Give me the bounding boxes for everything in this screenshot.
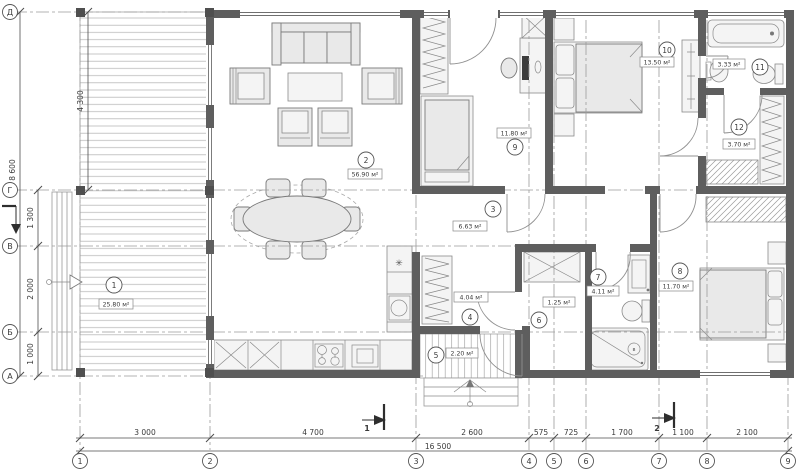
svg-text:8: 8 bbox=[678, 267, 683, 276]
dimensions-bottom: 3 000 4 700 2 600 575 725 1 700 1 100 2 … bbox=[73, 428, 796, 469]
room-label-10: 1013.50 м² bbox=[640, 42, 675, 67]
room-label-8: 811.70 м² bbox=[659, 263, 693, 291]
window-top-9a bbox=[424, 10, 448, 18]
svg-text:6: 6 bbox=[583, 457, 588, 466]
svg-text:3.70 м²: 3.70 м² bbox=[728, 142, 751, 149]
svg-text:6.63 м²: 6.63 м² bbox=[459, 224, 482, 231]
dim-8-9: 2 100 bbox=[736, 428, 758, 437]
dim-3-4: 2 600 bbox=[461, 428, 483, 437]
dining-set bbox=[231, 179, 363, 259]
terrace-deck bbox=[47, 12, 211, 370]
living-room-sofa-set bbox=[230, 23, 402, 146]
window-left-5 bbox=[206, 340, 214, 364]
svg-text:1: 1 bbox=[77, 457, 82, 466]
door-room9-exterior bbox=[450, 10, 498, 64]
window-top-10 bbox=[556, 10, 694, 18]
svg-text:6: 6 bbox=[537, 316, 542, 325]
door-room10-suite bbox=[660, 118, 698, 156]
svg-text:4: 4 bbox=[526, 457, 531, 466]
coffee-table bbox=[288, 73, 342, 101]
axis-bubbles-bottom: 1 2 3 4 5 6 7 8 9 bbox=[73, 454, 796, 469]
room-label-9: 11.80 м²9 bbox=[497, 128, 531, 155]
dim-7-8: 1 100 bbox=[672, 428, 694, 437]
window-top-11 bbox=[708, 10, 784, 18]
svg-text:2: 2 bbox=[654, 424, 660, 433]
room-label-4: 44.04 м² bbox=[454, 292, 488, 325]
svg-text:1: 1 bbox=[112, 281, 117, 290]
svg-text:4.04 м²: 4.04 м² bbox=[460, 295, 483, 302]
svg-text:11.80 м²: 11.80 м² bbox=[501, 131, 528, 138]
svg-text:3.33 м²: 3.33 м² bbox=[718, 62, 741, 69]
room-label-2: 256.90 м² bbox=[348, 152, 382, 179]
dim-4-5: 575 bbox=[534, 428, 549, 437]
window-bottom-8 bbox=[700, 370, 770, 378]
bedroom-8-furniture bbox=[700, 197, 786, 362]
vanity-sink bbox=[628, 255, 650, 293]
dim-d-g: 4 300 bbox=[76, 90, 85, 112]
svg-text:2: 2 bbox=[364, 156, 369, 165]
boiler-icon: ✳ bbox=[395, 259, 403, 269]
svg-text:13.50 м²: 13.50 м² bbox=[644, 60, 671, 67]
svg-text:7: 7 bbox=[596, 273, 601, 282]
svg-text:9: 9 bbox=[513, 143, 518, 152]
wardrobe bbox=[706, 197, 786, 222]
svg-text:Г: Г bbox=[8, 186, 13, 195]
svg-text:4: 4 bbox=[468, 313, 473, 322]
desk bbox=[520, 38, 548, 93]
desk-chair bbox=[501, 58, 517, 78]
shower-tray: в bbox=[588, 328, 648, 370]
nightstand bbox=[554, 18, 574, 40]
svg-text:В: В bbox=[7, 242, 13, 251]
window-left-1 bbox=[206, 45, 214, 105]
door-hall-room9 bbox=[507, 194, 545, 232]
svg-text:3: 3 bbox=[413, 457, 418, 466]
svg-text:7: 7 bbox=[656, 457, 661, 466]
toilet bbox=[622, 300, 650, 322]
drain-label: в bbox=[633, 347, 636, 353]
svg-text:25.80 м²: 25.80 м² bbox=[103, 302, 130, 309]
svg-text:А: А bbox=[7, 372, 13, 381]
svg-text:11: 11 bbox=[755, 63, 765, 72]
bathtub bbox=[708, 20, 784, 47]
svg-text:2.20 м²: 2.20 м² bbox=[451, 351, 474, 358]
svg-text:5: 5 bbox=[551, 457, 556, 466]
room-label-3: 36.63 м² bbox=[453, 201, 501, 231]
svg-text:2: 2 bbox=[207, 457, 212, 466]
svg-text:10: 10 bbox=[662, 46, 672, 55]
hall-cabinet-x bbox=[524, 252, 580, 282]
dim-2-3: 4 700 bbox=[302, 428, 324, 437]
dim-total-left: 8 600 bbox=[8, 159, 17, 181]
porch-steps bbox=[424, 378, 518, 407]
window-top-9b bbox=[500, 10, 543, 18]
svg-text:11.70 м²: 11.70 м² bbox=[663, 284, 690, 291]
kitchen: ✳ bbox=[214, 246, 412, 370]
window-top-living bbox=[240, 10, 400, 18]
svg-text:3: 3 bbox=[491, 205, 496, 214]
bedroom-10-furniture bbox=[554, 18, 700, 136]
dim-g-v: 1 300 bbox=[26, 207, 35, 229]
window-left-3 bbox=[206, 198, 214, 240]
dim-5-6: 725 bbox=[564, 428, 579, 437]
room-label-12: 123.70 м² bbox=[723, 119, 755, 149]
bed-single bbox=[421, 96, 473, 186]
section-marker-left bbox=[2, 206, 21, 234]
terrace-side-steps bbox=[52, 192, 72, 370]
svg-text:56.90 м²: 56.90 м² bbox=[352, 172, 379, 179]
dim-6-7: 1 700 bbox=[611, 428, 633, 437]
svg-text:9: 9 bbox=[785, 457, 790, 466]
dim-b-a: 1 000 bbox=[26, 343, 35, 365]
window-left-2 bbox=[206, 128, 214, 180]
section-marker-1: 1 bbox=[362, 404, 386, 433]
svg-text:1: 1 bbox=[364, 424, 370, 433]
dim-total-bottom: 16 500 bbox=[425, 442, 451, 451]
window-left-4 bbox=[206, 254, 214, 316]
svg-text:12: 12 bbox=[734, 123, 744, 132]
floor-plan-canvas: ✳ bbox=[0, 0, 800, 470]
room-label-7: 74.11 м² bbox=[587, 269, 619, 296]
svg-text:5: 5 bbox=[434, 351, 439, 360]
dining-table bbox=[243, 196, 351, 242]
nightstand bbox=[554, 114, 574, 136]
svg-text:Б: Б bbox=[7, 328, 13, 337]
shelf-unit bbox=[706, 160, 758, 184]
dim-1-2: 3 000 bbox=[134, 428, 156, 437]
svg-text:4.11 м²: 4.11 м² bbox=[592, 289, 615, 296]
dim-v-b: 2 000 bbox=[26, 278, 35, 300]
svg-text:1.25 м²: 1.25 м² bbox=[548, 300, 571, 307]
entry-porch bbox=[420, 334, 522, 407]
bed-double bbox=[554, 42, 642, 113]
room-label-6: 61.25 м² bbox=[531, 297, 575, 328]
nightstand bbox=[768, 242, 786, 264]
bed-double bbox=[700, 268, 784, 340]
svg-text:8: 8 bbox=[704, 457, 709, 466]
axis-bubbles-left: Д Г В Б А bbox=[3, 5, 18, 384]
svg-text:Д: Д bbox=[7, 8, 13, 17]
nightstand bbox=[768, 344, 786, 362]
door-room8 bbox=[660, 194, 696, 232]
wardrobe-4-furniture bbox=[422, 256, 452, 324]
wardrobe bbox=[682, 40, 700, 112]
